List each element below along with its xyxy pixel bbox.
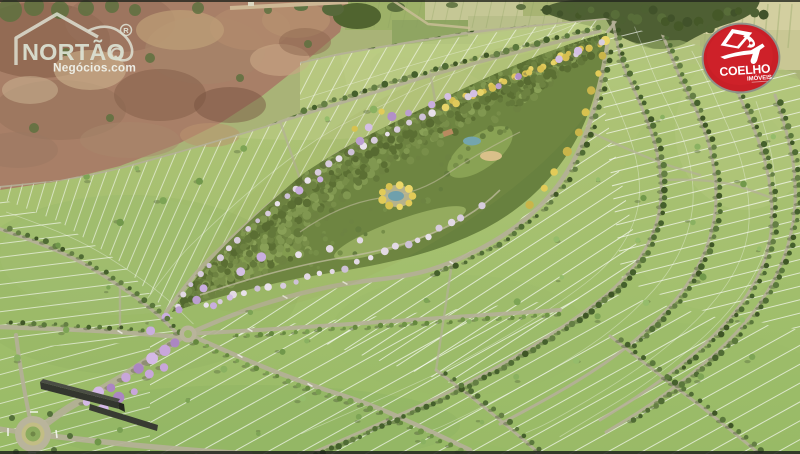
- svg-text:Negócios.com: Negócios.com: [53, 61, 136, 75]
- svg-text:R: R: [123, 26, 129, 35]
